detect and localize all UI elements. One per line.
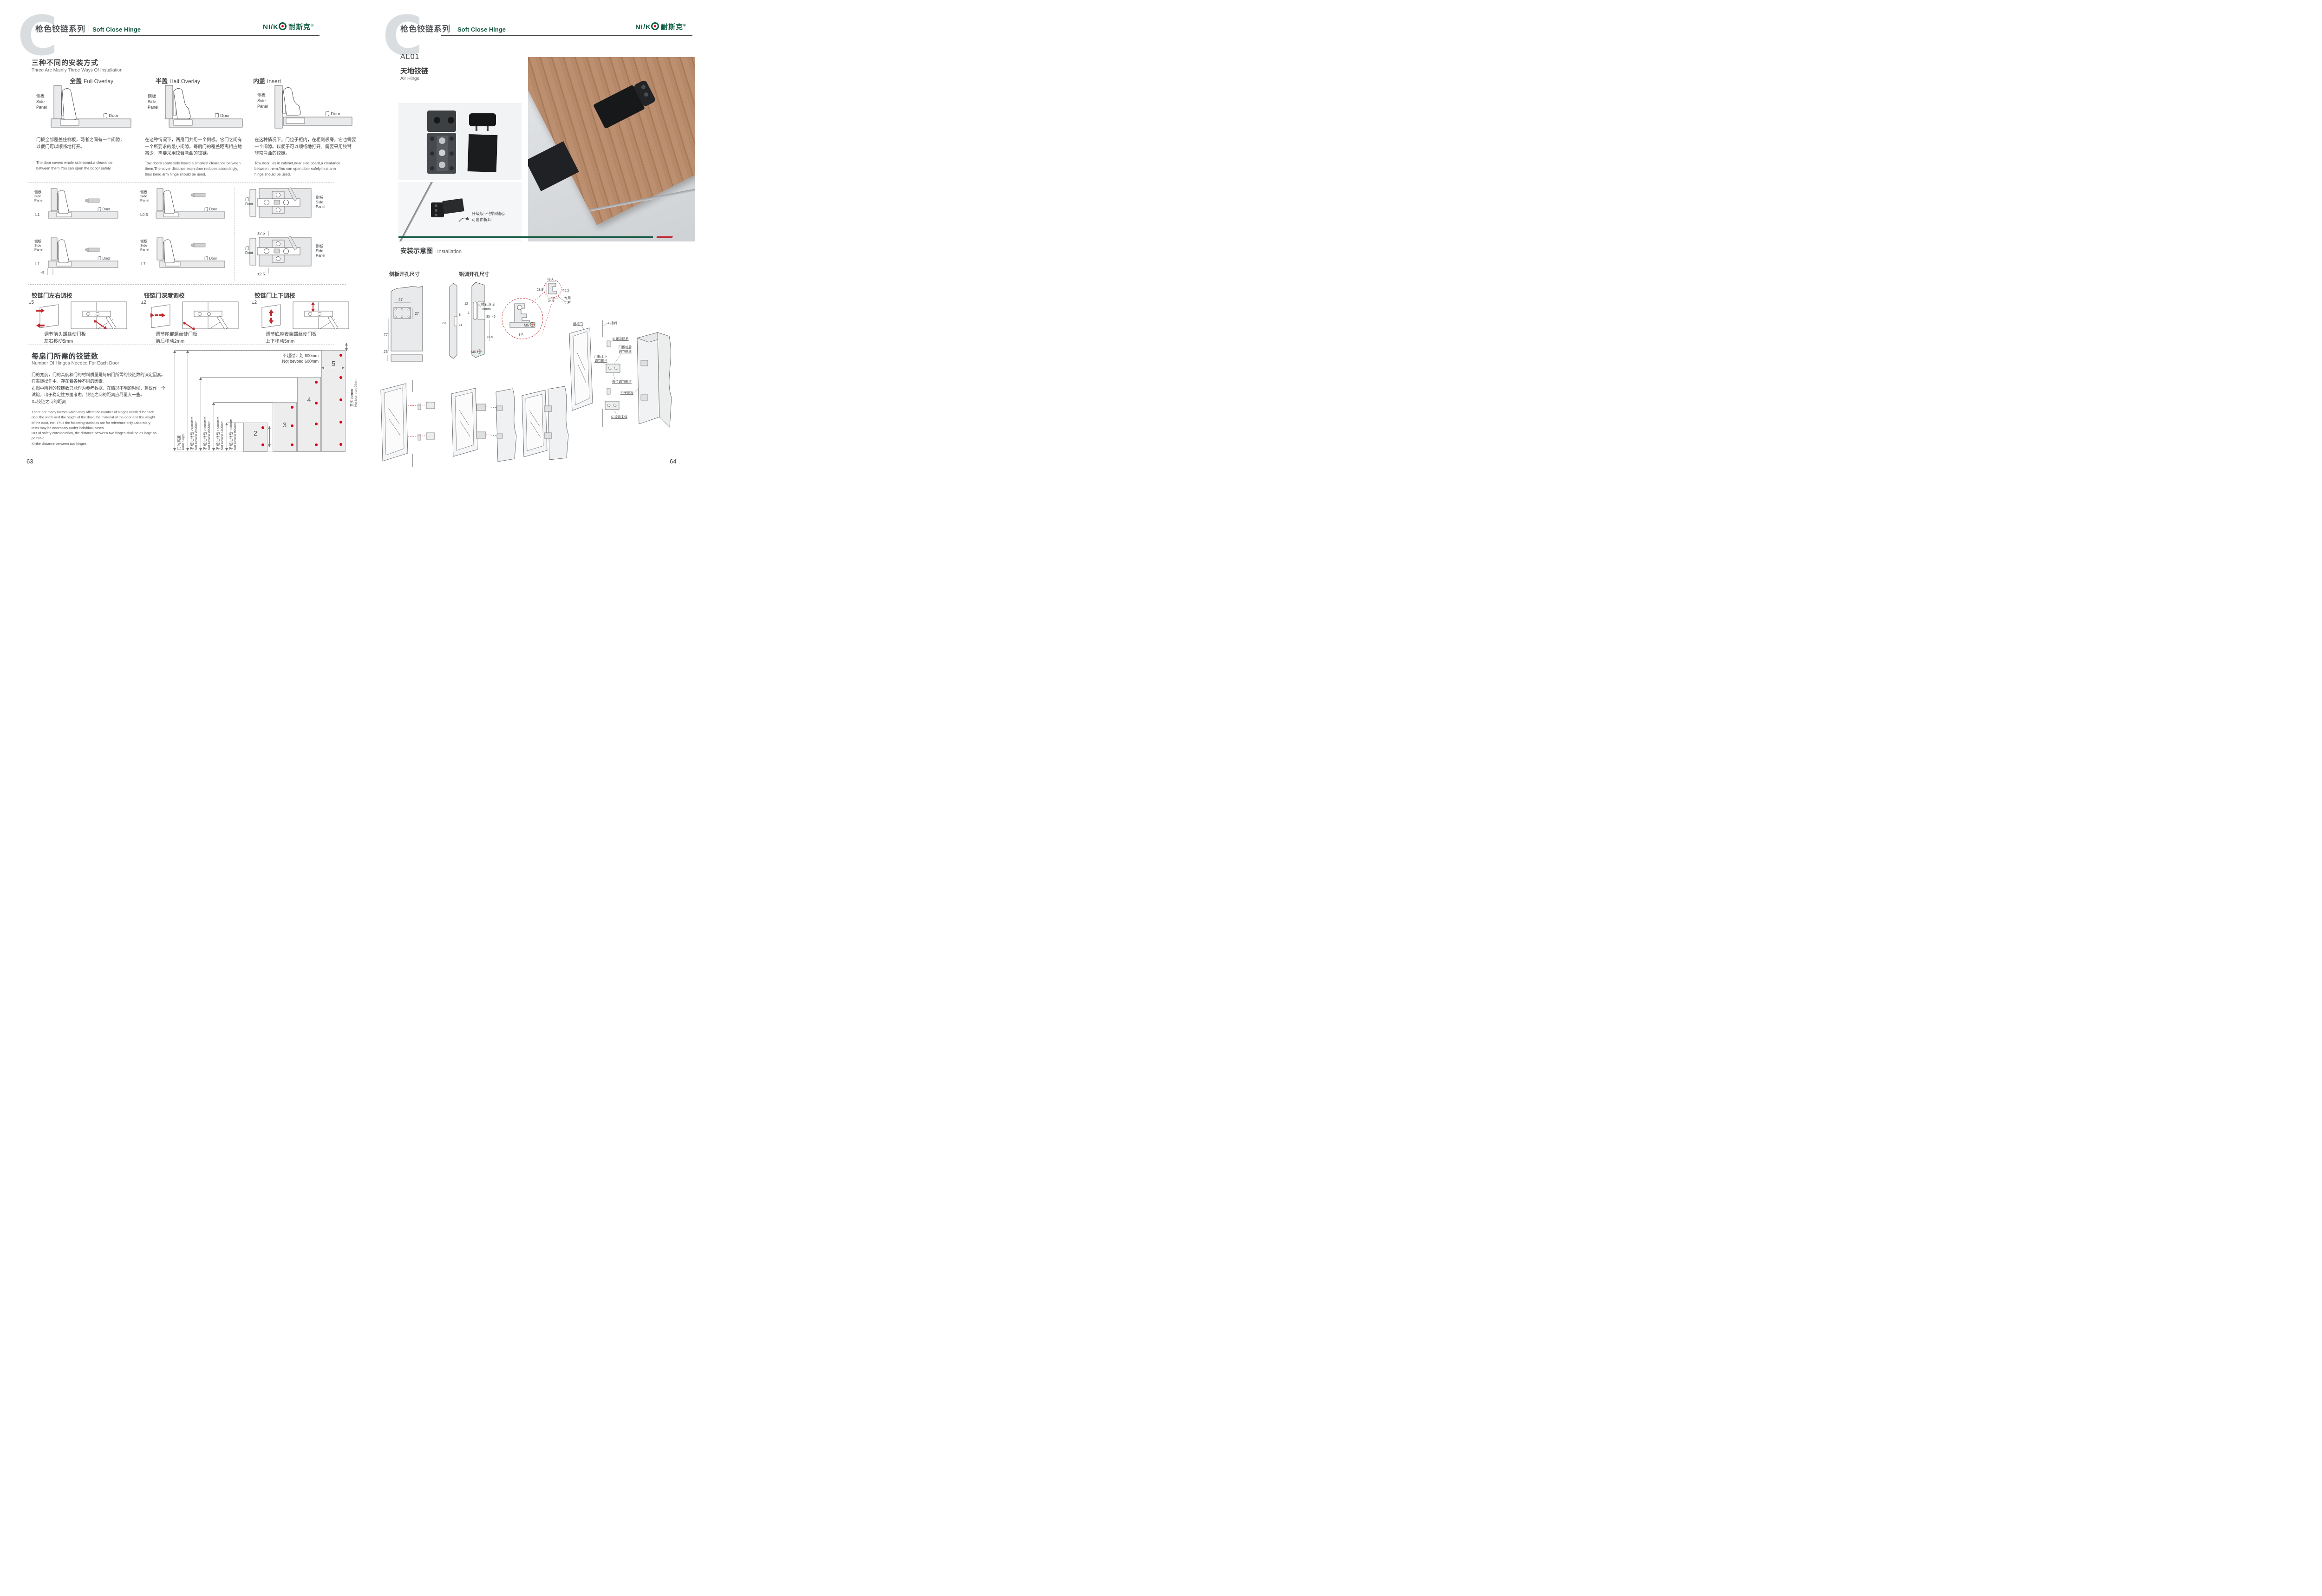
half-overlay-desc-cn: 在这种情况下，两扇门共用一个侧板。它们之间有一个所要求的最小间隙。每扇门的覆盖距… — [145, 137, 251, 157]
side-panel-label-cn: 侧板 — [140, 239, 147, 243]
dim-12: 12 — [464, 302, 468, 306]
brand-logo: NI/K耐斯克® — [263, 21, 314, 32]
product-name-en: Air Hinge — [400, 76, 419, 81]
label-cabinet-side: 柜子侧板 — [620, 391, 633, 395]
separator-green — [398, 236, 653, 238]
title-divider — [454, 25, 454, 33]
insert-desc-en: Tow door lies in cabinet,near side board… — [254, 161, 361, 177]
insert-en: Insert — [267, 78, 281, 85]
full-overlay-desc-en: The door covers whole side board,a clear… — [36, 160, 143, 171]
alu-strip-2 — [472, 282, 485, 358]
hinge-block — [431, 202, 444, 217]
hinge-arm-icon — [174, 88, 190, 119]
product-name-cn: 天地铰链 — [400, 66, 428, 76]
adjust2-caption: 调节尾部螺丝使门板前后移动2mm — [156, 332, 197, 345]
hinge-cap — [469, 113, 496, 126]
half-overlay-diagram: 侧板 Side Panel 门 Door — [145, 85, 249, 131]
side-panel-label-en2: Panel — [140, 248, 150, 252]
label-pin: A 插销 — [607, 321, 617, 325]
adjust1-title: 铰链门左右调校 — [32, 291, 72, 300]
hinge-dot — [339, 354, 342, 357]
dim-8: 8 — [459, 313, 461, 317]
chart-ylabel: 门的高度 Door height — [176, 434, 185, 450]
door-label: 门 Door — [103, 113, 118, 118]
side-panel-rect — [165, 85, 173, 119]
hinge-dot — [291, 443, 294, 446]
door-label-cn: 门 — [245, 197, 249, 202]
colhead-insert: 内盖Insert — [253, 76, 281, 85]
dim-14-1: 14.1 — [547, 278, 554, 281]
side-panel-rect — [157, 238, 163, 260]
separator-3 — [28, 345, 334, 345]
side-panel-label-en2: Panel — [36, 105, 47, 110]
installation-title: 安装示意图 Installation — [400, 246, 462, 255]
door-box — [40, 305, 59, 328]
page-number-right: 64 — [670, 458, 676, 465]
logo-reg: ® — [311, 23, 314, 27]
separator-1 — [28, 182, 334, 182]
adjust3-diagram — [258, 301, 351, 330]
cover-pad — [468, 134, 498, 172]
hinge-cup — [286, 118, 305, 124]
door-label-en: Door — [245, 202, 254, 206]
hinges-paragraph-en: There are many factors which may affect … — [32, 410, 176, 446]
screw-head — [439, 137, 445, 144]
hinge-cup — [174, 120, 192, 125]
full-overlay-en: Full Overlay — [84, 78, 113, 85]
dim-46: 46 — [492, 315, 496, 319]
screw-head — [439, 150, 445, 156]
series-title-en: Soft Close Hinge — [457, 26, 506, 33]
damper-part — [418, 435, 421, 440]
hinges-title-en: Number Of Hinges Needed For Each Door — [32, 361, 119, 366]
side-panel-label-en2: Panel — [140, 198, 150, 202]
dim-34-9: 34.9 — [548, 300, 554, 303]
hinge-dot — [315, 402, 318, 404]
dim-label-extra: +5 — [40, 270, 45, 275]
screw-tip — [191, 243, 194, 247]
full-overlay-desc-cn: 门板全部覆盖住侧板，两者之间有一个间隙，以便门可以顺畅地打开。 — [36, 137, 142, 150]
dim-33: 33 — [486, 315, 490, 319]
side-panel-label-en1: Side — [316, 200, 324, 204]
hinge-part — [476, 432, 486, 438]
header-rule — [69, 35, 320, 36]
logo-o-icon — [279, 22, 287, 30]
side-panel-label-cn: 侧板 — [34, 239, 41, 243]
label-up-down-1: 门板上下 — [594, 354, 607, 358]
door-label: 门 Door — [204, 256, 217, 261]
edge-min-arrow — [346, 343, 347, 351]
dim-15-5: 15.5 — [487, 336, 493, 339]
damper-part — [607, 341, 610, 347]
hinge-part — [426, 402, 435, 409]
logo-reg: ® — [683, 23, 686, 27]
dim-plate-bottom: ±2.5 — [257, 272, 265, 276]
hinge-dot — [339, 376, 342, 379]
dim-20: 20 — [442, 322, 446, 325]
dim-1: 1 — [468, 312, 470, 315]
logo-cn: 耐斯克 — [288, 23, 311, 31]
plate-slot — [274, 249, 280, 253]
dim-m5-large: M5 — [524, 323, 529, 327]
cabinet-plate — [497, 406, 502, 410]
overlay-diagram-4: 侧板 Side Panel 门 Door L7 — [139, 237, 228, 270]
chart-top-line — [175, 350, 321, 351]
dim-47: 47 — [398, 298, 403, 302]
brand-logo-right: NI/K耐斯克® — [635, 21, 686, 32]
page-number-left: 63 — [26, 458, 33, 465]
adjust3-title: 铰链门上下调校 — [254, 291, 295, 300]
side-panel-label-en1: Side — [257, 98, 266, 103]
label-up-down-2: 调节螺丝 — [594, 358, 607, 363]
side-panel-label-en1: Side — [140, 194, 147, 198]
hinge-dot — [261, 443, 264, 446]
dim-m5: M5 — [471, 350, 476, 354]
logo-cn: 耐斯克 — [661, 23, 683, 31]
hinge-dot — [339, 443, 342, 446]
door-label-en: Door — [245, 251, 254, 255]
dim-line-1600 — [214, 402, 214, 451]
title-divider — [89, 25, 89, 33]
logo-latin: NI/K — [263, 23, 279, 31]
door-box — [262, 305, 280, 328]
profile-section-small — [548, 283, 557, 294]
dim-label: L7 — [141, 261, 146, 266]
side-panel-rect — [275, 85, 282, 128]
half-overlay-en: Half Overlay — [170, 78, 200, 85]
dim-25: 25 — [384, 350, 388, 354]
assembly-steps — [377, 380, 581, 469]
adjust2-range: ±2 — [141, 300, 146, 305]
product-code: AL01 — [400, 53, 419, 61]
x-distance-arrow — [269, 426, 270, 447]
alu-note-1: 专用 — [564, 296, 571, 300]
label-hinge-body: C 铰链主体 — [611, 415, 627, 419]
screw-head — [264, 200, 269, 205]
hinge-arm-icon — [62, 88, 76, 120]
hinge-part — [544, 406, 552, 411]
side-panel-label-en1: Side — [34, 243, 41, 248]
insert-desc-cn: 在这种情况下，门位于柜内，在柜侧板旁。它也需要一个间隙。以便于可以顺畅地打开。需… — [254, 137, 360, 157]
hinges-title-cn: 每扇门所需的铰链数 — [32, 351, 98, 361]
side-hole-title: 侧板开孔尺寸 — [389, 270, 420, 278]
edge-min-note: 至少90mm Not less than 90mm — [349, 379, 358, 407]
door-label-cn: 门 — [245, 246, 249, 250]
hinge-dot — [291, 406, 294, 409]
profile-detail-drawing: 14.1 28.9 Φ6.2 34.9 专用 铝材 M5 1:5 — [502, 278, 576, 344]
product-photo-rod: 升级版·不锈钢轴心 可自由拆卸 — [398, 182, 522, 241]
hinge-dot — [291, 424, 294, 427]
side-panel-label-cn: 侧板 — [316, 195, 323, 200]
side-panel-label-cn: 侧板 — [140, 189, 147, 194]
hinge-part-2 — [605, 401, 619, 410]
hinge-part — [544, 433, 552, 438]
dim-77: 77 — [384, 333, 388, 337]
alu-hole-drawing: 8 20 11 槽孔深度 18mm 12 1 33 46 15.5 M5 — [442, 281, 498, 365]
side-panel-label-en2: Panel — [34, 198, 44, 202]
limit-900: 不超过计划900mm Not bevond 900mm — [228, 418, 237, 450]
series-title-en: Soft Close Hinge — [92, 26, 141, 33]
overlay-diagram-2: 侧板 Side Panel 门 Door L0.5 — [139, 188, 228, 221]
door-label: 门 Door — [98, 207, 111, 211]
insert-cn: 内盖 — [253, 78, 265, 85]
alu-hole-title: 铝调开孔尺寸 — [459, 270, 489, 278]
colhead-half-overlay: 半盖Half Overlay — [156, 76, 200, 85]
side-hole-drawing: 47 27 77 25 — [384, 281, 439, 365]
width-limit-note: 不超过计划 600mm Not bevond 600mm — [249, 353, 319, 364]
side-panel-label-en2: Panel — [257, 104, 268, 109]
screw-head — [439, 162, 445, 168]
installation-title-cn: 安装示意图 — [400, 247, 433, 254]
label-front-back-1: 门板前后 — [619, 345, 632, 349]
width-limit-arrow — [321, 368, 345, 368]
hinge-arm-icon — [58, 240, 69, 263]
side-panel-label-en2: Panel — [148, 105, 158, 110]
half-overlay-cn: 半盖 — [156, 78, 168, 85]
dim-label: L0.5 — [140, 212, 148, 217]
bottom-board — [391, 355, 423, 361]
cabinet-side — [548, 386, 568, 460]
limit-2000: 不超过计划2000mm Not bevond 2000mm — [202, 417, 211, 450]
hinge-count-chart: 门的高度 Door height 不超过计划2400mm Not bevond … — [171, 347, 357, 461]
cabinet-side-panel — [658, 332, 672, 427]
curved-arrow-icon — [458, 215, 470, 223]
chart-bar-3: 3 — [273, 402, 297, 452]
hinge-dot — [261, 426, 264, 429]
side-panel-rect — [54, 85, 61, 119]
chapter-watermark: C — [18, 8, 58, 63]
install-title-en: Three Are Mainly Three Ways Of Installat… — [32, 68, 123, 73]
screw-icon — [194, 193, 205, 197]
hinge-dot — [315, 381, 318, 384]
screw-icon — [194, 243, 205, 247]
side-panel-label-en1: Side — [148, 99, 156, 104]
dim-line-door-height — [175, 350, 175, 451]
side-panel-label-cn: 侧板 — [36, 93, 45, 98]
dim-label: L1 — [35, 212, 40, 217]
plate-diagram-bottom: ±2.5 门 Door 侧板 Side Panel ±2.5 — [245, 230, 344, 276]
side-panel-label-en1: Side — [34, 194, 41, 198]
hinge-arm-icon — [164, 190, 175, 214]
product-photo-parts — [398, 103, 522, 180]
limit-2400: 不超过计划2400mm Not bevond 2400mm — [189, 417, 198, 450]
door-label: 门 Door — [204, 207, 217, 211]
adjust2-diagram — [148, 301, 241, 330]
screw-head — [264, 249, 269, 254]
label-damper: B 缓冲阻尼 — [613, 337, 629, 341]
slot-hole — [473, 302, 477, 319]
hinge-arm-icon — [283, 87, 300, 115]
chart-bar-4: 4 — [297, 377, 321, 452]
installation-title-en: Installation — [437, 249, 462, 254]
screw-tip — [85, 199, 88, 202]
dim-27: 27 — [415, 312, 419, 316]
hinge-arm-icon — [58, 190, 69, 214]
insert-diagram: 侧板 Side Panel 门 Door — [254, 85, 359, 131]
slot-depth-cn: 槽孔深度 — [481, 302, 495, 306]
logo-latin: NI/K — [635, 23, 651, 31]
hinge-part — [476, 404, 486, 410]
scale-note: 1:5 — [518, 333, 524, 337]
adjust1-range: ±5 — [29, 300, 34, 305]
install-title-cn: 三种不同的安装方式 — [32, 58, 98, 67]
overlay-diagram-1: 侧板 Side Panel 门 Door L1 — [33, 188, 122, 221]
side-panel-label-en1: Side — [140, 243, 147, 248]
door-label: 门 Door — [98, 256, 111, 261]
side-panel-label-en2: Panel — [316, 205, 326, 209]
hinge-dot — [315, 443, 318, 446]
side-panel-label-en2: Panel — [34, 248, 44, 252]
alu-note-2: 铝材 — [564, 300, 571, 305]
chart-bar-2: 2 — [243, 423, 267, 452]
exploded-view: 铝框门 A 插销 B 缓冲阻尼 门板前后 调节螺丝 门板上下 调节螺丝 盖位调节… — [567, 319, 676, 433]
slot-depth-mm: 18mm — [481, 307, 491, 311]
hinges-paragraph-cn: 门的宽度，门的高度和门的材料质量是每扇门所需的铰链数的决定因素。在实际操作中，存… — [32, 371, 171, 405]
separator-red — [656, 236, 673, 238]
screw-icon — [88, 199, 99, 202]
hinge-dot — [315, 423, 318, 425]
dim-line-2000 — [201, 377, 201, 451]
side-panel-rect — [51, 189, 57, 211]
side-panel-label-en1: Side — [36, 99, 45, 104]
hinge-dot — [339, 421, 342, 423]
side-panel-label-en1: Side — [316, 249, 324, 253]
damper-part — [418, 404, 421, 410]
full-overlay-cn: 全盖 — [70, 78, 82, 85]
screw-head — [276, 208, 280, 212]
adjust3-range: ±2 — [252, 300, 257, 305]
dim-label: L1 — [35, 261, 40, 266]
dim-line-900 — [227, 423, 227, 451]
hinge-dot — [339, 398, 342, 401]
overlay-diagram-3: 侧板 Side Panel 门 Door L1 +5 — [33, 237, 122, 276]
label-cover-screw: 盖位调节螺丝 — [612, 379, 632, 384]
adjust3-caption: 调节底座安装螺丝使门板上下移动5mm — [266, 332, 317, 345]
screw-head — [276, 193, 280, 197]
dim-plate-top: ±2.5 — [257, 231, 265, 235]
dim-dia-6-2: Φ6.2 — [562, 289, 569, 293]
side-panel-rect — [51, 238, 57, 260]
page-header-right: 枪色铰链系列Soft Close Hinge — [400, 22, 506, 34]
cabinet-side — [496, 389, 516, 462]
header-rule-right — [441, 35, 692, 36]
label-front-back-2: 调节螺丝 — [619, 349, 632, 353]
full-overlay-diagram: 侧板 Side Panel 门 Door — [33, 85, 138, 131]
dim-line-2400 — [188, 350, 188, 451]
adjust1-diagram — [36, 301, 129, 330]
screw-head — [284, 200, 289, 205]
logo-o-icon — [651, 22, 659, 30]
side-panel-label-cn: 侧板 — [34, 189, 41, 194]
steel-rod — [398, 182, 433, 241]
series-title-cn: 枪色铰链系列 — [35, 25, 85, 33]
screw-tip — [85, 248, 88, 252]
hinge-part-1 — [606, 364, 620, 372]
door-label: 门 Door — [325, 111, 340, 117]
side-panel-label-cn: 侧板 — [316, 244, 323, 248]
hinge-plate — [442, 198, 464, 214]
dim-11: 11 — [459, 324, 462, 327]
cabinet-plate — [497, 434, 502, 438]
limit-1600: 不超过计划1600mm Not bevond 1600mm — [215, 417, 224, 450]
hinge-part — [426, 433, 435, 439]
catalog-spread: C 枪色铰链系列Soft Close Hinge NI/K耐斯克® 三种不同的安… — [0, 0, 701, 479]
separator-2 — [28, 284, 346, 285]
screw-tip — [191, 193, 194, 197]
door-label: 门 Door — [215, 113, 230, 118]
half-overlay-desc-en: Tow doors share side board,a smallest cl… — [145, 161, 252, 177]
adjust2-title: 铰链门深度调校 — [144, 291, 185, 300]
screw-head — [276, 242, 280, 246]
chart-bar-5: 5 — [321, 350, 346, 452]
cabinet-plate — [641, 395, 648, 400]
dim-28-9: 28.9 — [537, 288, 543, 292]
plate-slot — [274, 200, 280, 204]
wood-board — [528, 57, 695, 225]
cabinet-plate — [641, 360, 648, 366]
side-panel-label-cn: 侧板 — [148, 93, 156, 98]
screw-head — [276, 257, 280, 261]
side-panel-label-cn: 侧板 — [257, 92, 266, 98]
label-alu-door: 铝框门 — [573, 322, 583, 326]
adjust1-caption: 调节前头螺丝使门板左右移动5mm — [44, 332, 86, 345]
side-panel-label-en2: Panel — [316, 254, 326, 258]
screw-head — [284, 249, 289, 254]
cabinet-front — [637, 332, 659, 424]
series-title-cn: 枪色铰链系列 — [400, 25, 450, 33]
upgrade-note: 升级版·不锈钢轴心 可自由拆卸 — [472, 211, 505, 223]
side-panel-rect — [157, 189, 163, 211]
product-photo-scene — [528, 57, 695, 241]
plate-diagram-top: 门 Door 侧板 Side Panel — [245, 188, 344, 218]
damper-part — [607, 388, 610, 394]
hinge-cup — [60, 120, 79, 125]
notch — [454, 317, 457, 326]
hinge-arm-icon — [164, 240, 175, 263]
section2-divider — [235, 188, 235, 280]
screw-icon — [88, 248, 99, 252]
colhead-full-overlay: 全盖Full Overlay — [70, 76, 113, 85]
page-header-left: 枪色铰链系列Soft Close Hinge — [35, 22, 141, 34]
